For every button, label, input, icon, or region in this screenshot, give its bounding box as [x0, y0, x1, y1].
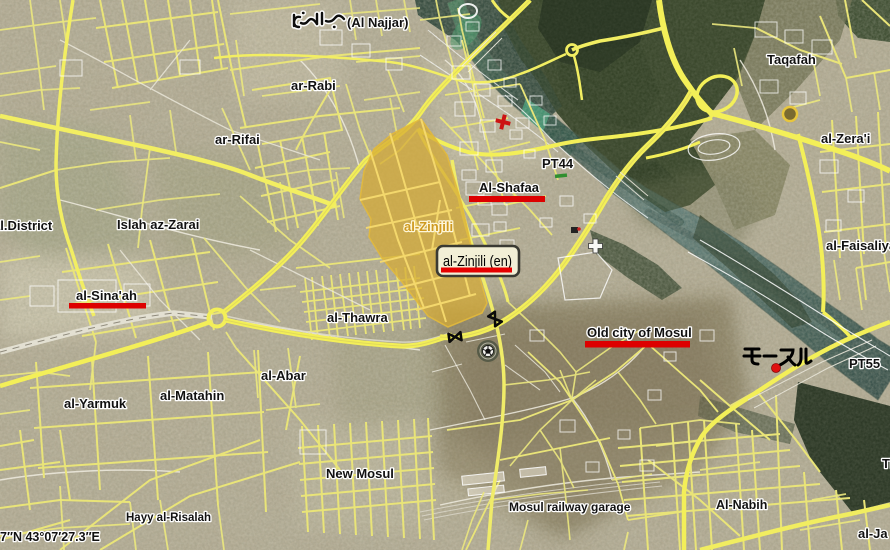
- svg-text:New Mosul: New Mosul: [326, 466, 394, 481]
- svg-text:Al-Nabih: Al-Nabih: [716, 498, 767, 512]
- svg-text:Mosul railway garage: Mosul railway garage: [509, 500, 631, 514]
- svg-text:al-Sina'ah: al-Sina'ah: [76, 288, 137, 303]
- svg-text:(Al Najjar): (Al Najjar): [347, 15, 408, 30]
- svg-text:Taqafah: Taqafah: [767, 52, 816, 67]
- svg-text:Islah az-Zarai: Islah az-Zarai: [117, 217, 199, 232]
- svg-text:al-Matahin: al-Matahin: [160, 388, 224, 403]
- svg-text:al.District: al.District: [0, 218, 53, 233]
- svg-text:al-Ja: al-Ja: [858, 526, 888, 541]
- svg-text:al-Zera'i: al-Zera'i: [821, 131, 870, 146]
- svg-text:Al-Shafaa: Al-Shafaa: [479, 180, 540, 195]
- svg-text:ar-Rabi: ar-Rabi: [291, 78, 336, 93]
- svg-text:PT44: PT44: [542, 156, 574, 171]
- svg-text:Th: Th: [882, 456, 890, 471]
- svg-text:Hayy al-Risalah: Hayy al-Risalah: [126, 512, 211, 524]
- svg-text:7″N 43°07′27.3″E: 7″N 43°07′27.3″E: [0, 530, 100, 544]
- svg-text:Old city of Mosul: Old city of Mosul: [587, 325, 692, 340]
- svg-text:al-Abar: al-Abar: [261, 368, 306, 383]
- svg-text:PT55: PT55: [849, 356, 880, 371]
- svg-text:al-Yarmuk: al-Yarmuk: [64, 396, 127, 411]
- svg-text:al-Faisaliya: al-Faisaliya: [826, 238, 890, 253]
- svg-text:al-Zinjili: al-Zinjili: [404, 219, 453, 234]
- svg-text:ar-Rifai: ar-Rifai: [215, 132, 260, 147]
- svg-text:al-Thawra: al-Thawra: [327, 310, 388, 325]
